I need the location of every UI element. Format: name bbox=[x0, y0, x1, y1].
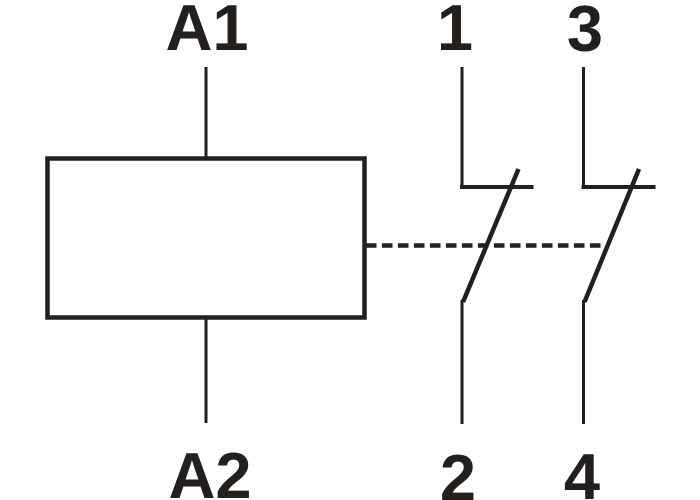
coil-box bbox=[48, 159, 365, 318]
terminal-label-4: 4 bbox=[564, 440, 600, 500]
schematic-canvas: A1 1 3 A2 2 4 bbox=[0, 0, 700, 500]
terminal-label-2: 2 bbox=[440, 441, 476, 500]
contactor-schematic-drawing: A1 1 3 A2 2 4 bbox=[0, 0, 700, 500]
terminal-label-a2: A2 bbox=[168, 439, 251, 500]
terminal-label-1: 1 bbox=[437, 0, 473, 64]
terminal-label-3: 3 bbox=[567, 0, 603, 65]
terminal-label-a1: A1 bbox=[165, 0, 248, 64]
